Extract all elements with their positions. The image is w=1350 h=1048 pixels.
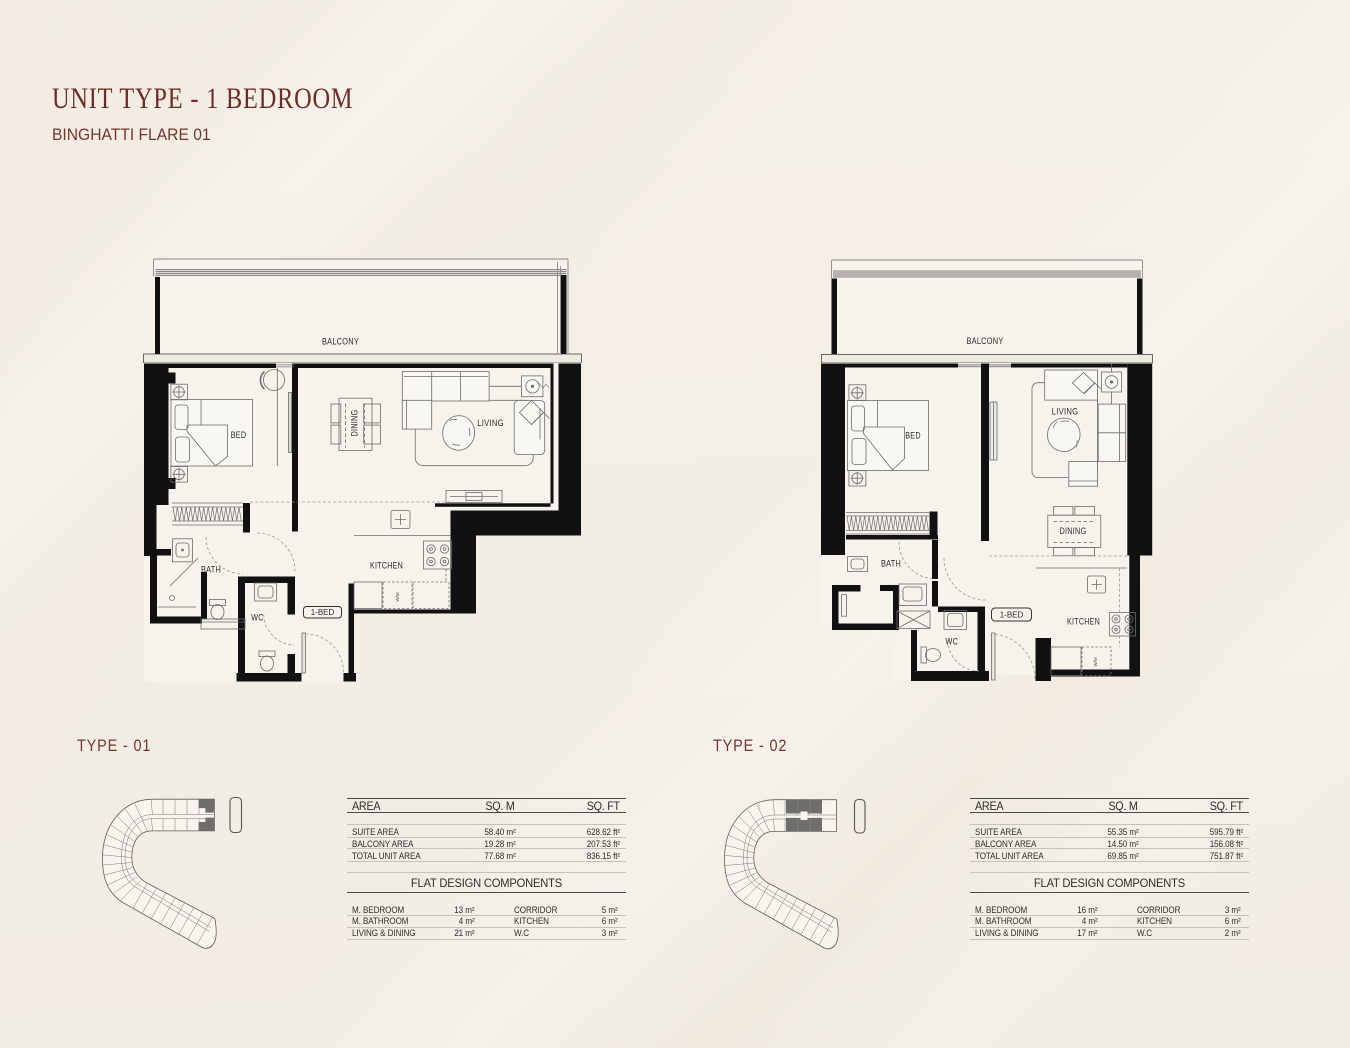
svg-text:BATH: BATH [201, 565, 221, 575]
svg-text:WC: WC [251, 613, 264, 623]
svg-text:BED: BED [231, 430, 247, 440]
svg-text:1-BED: 1-BED [311, 608, 335, 617]
svg-text:BED: BED [905, 431, 921, 441]
svg-text:BATH: BATH [881, 559, 901, 569]
svg-text:WC: WC [946, 637, 959, 647]
